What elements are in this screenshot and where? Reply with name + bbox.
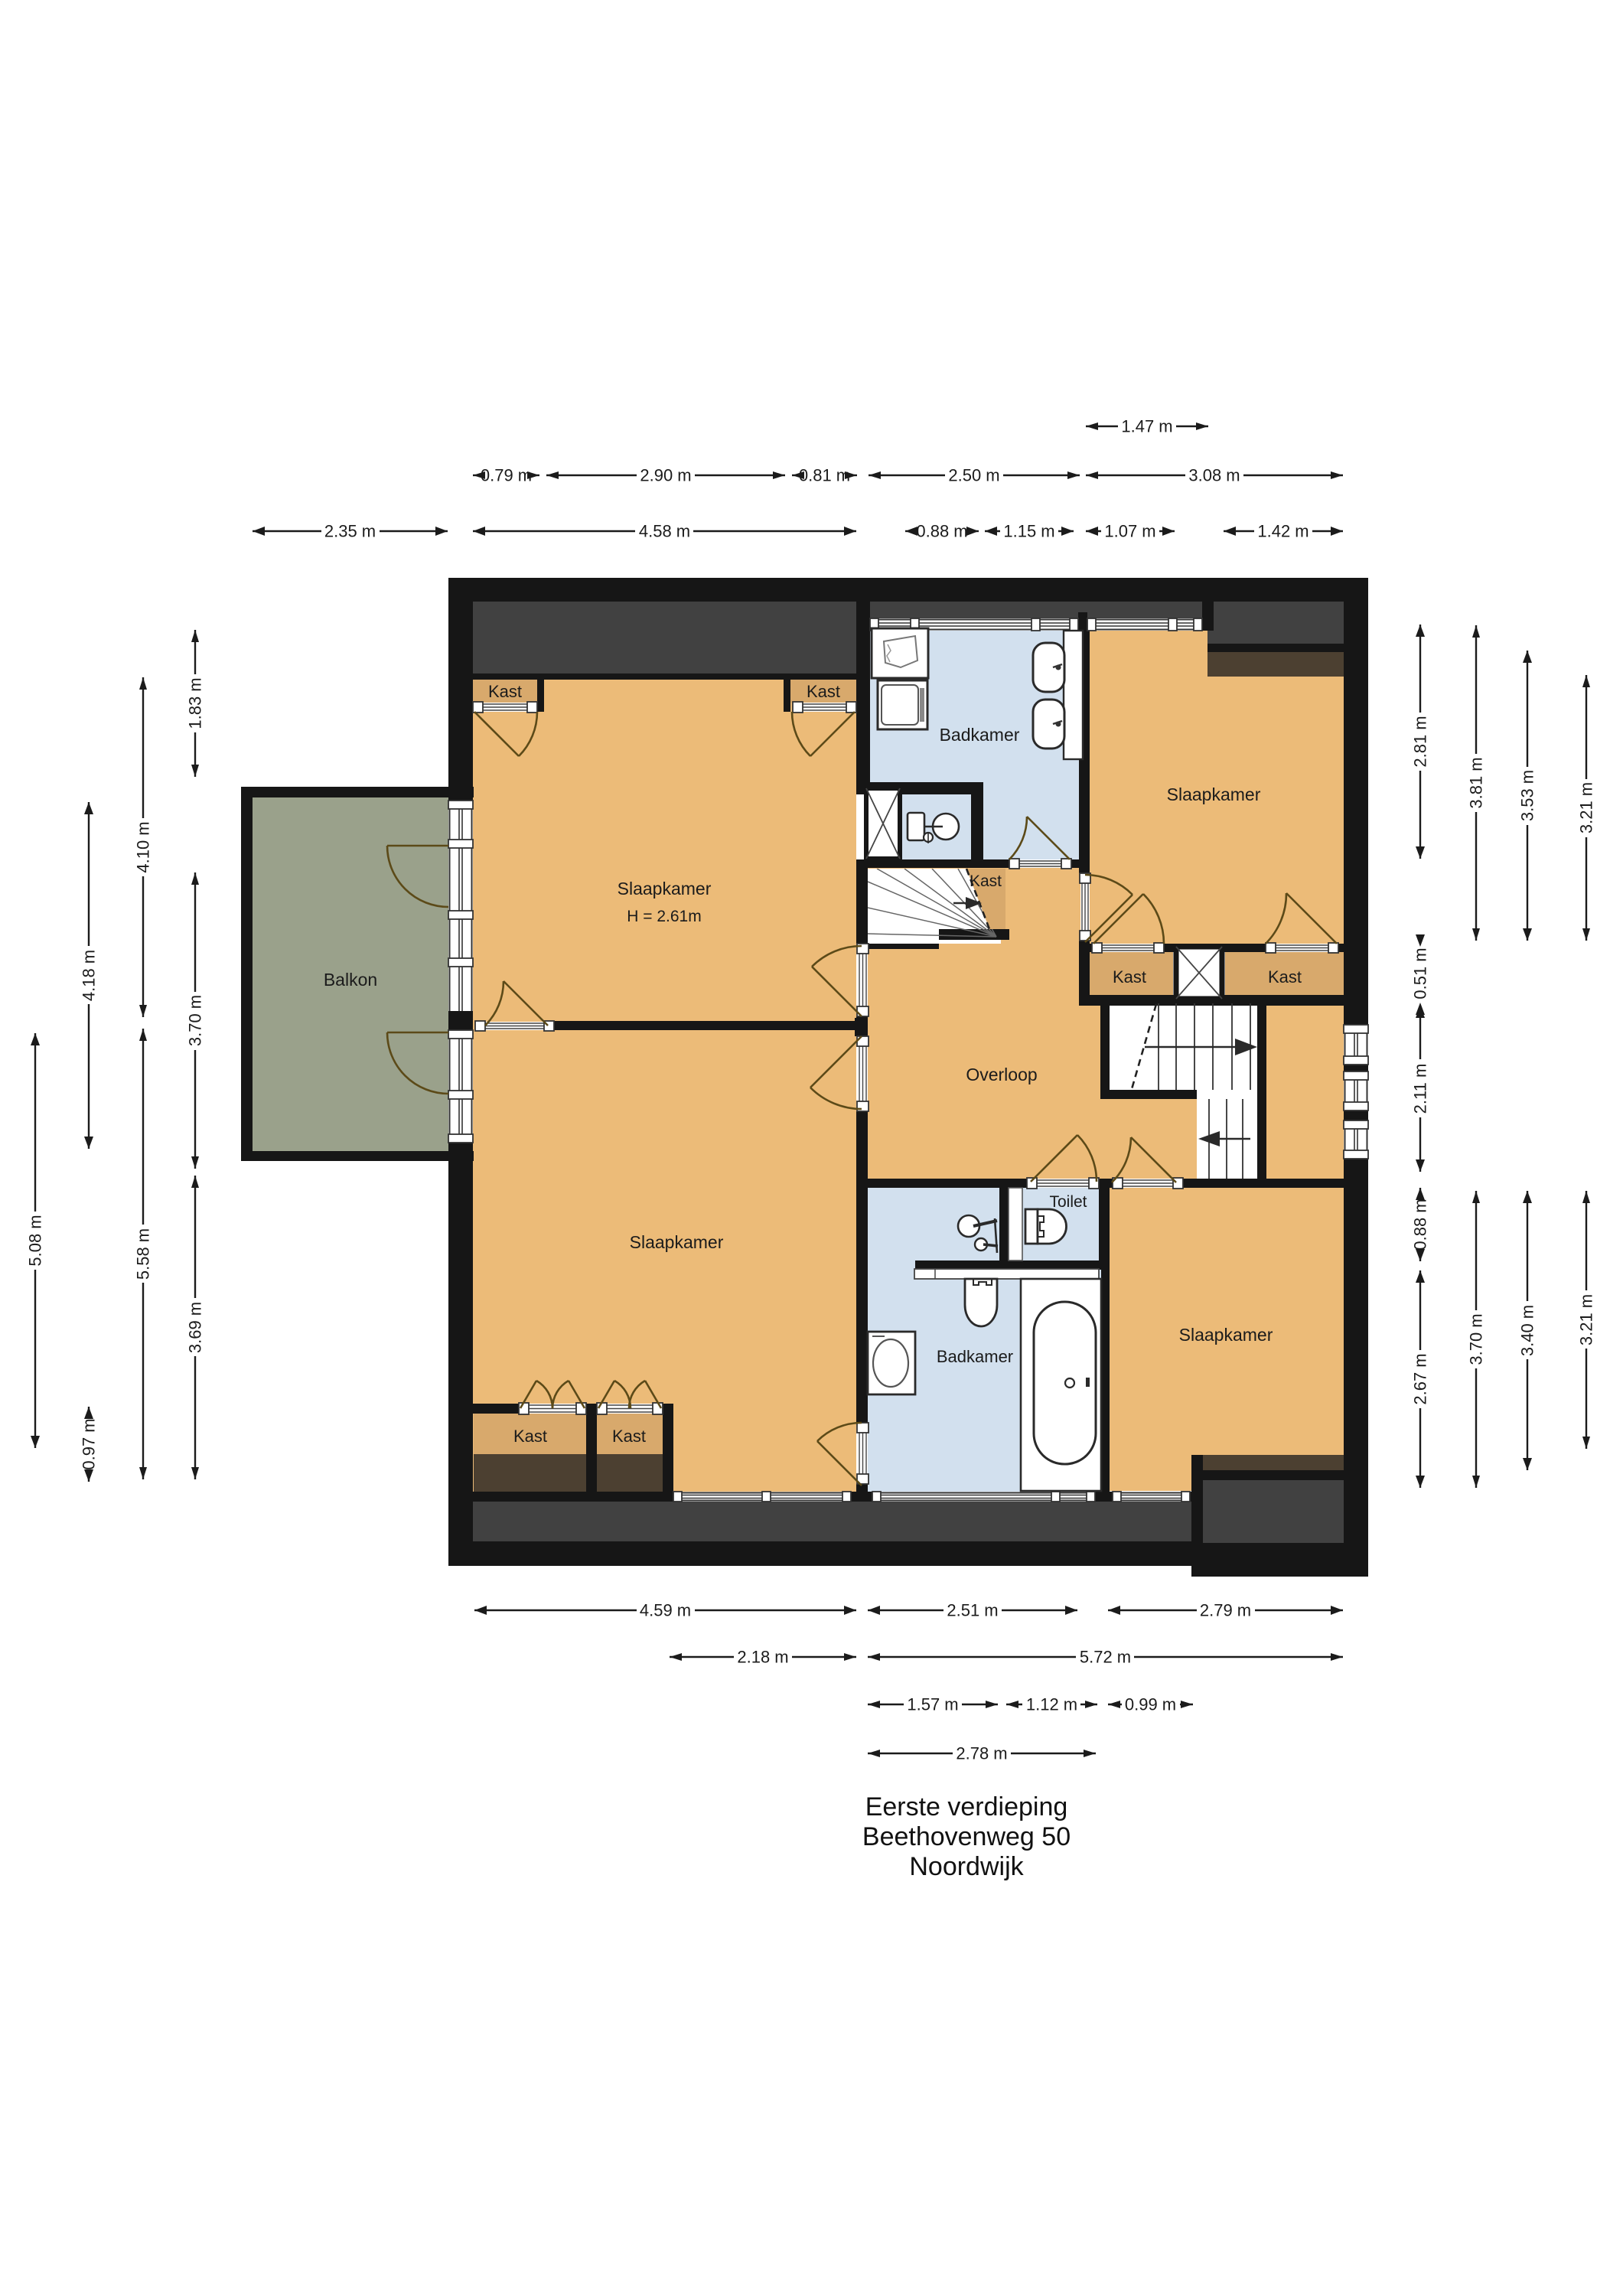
- svg-text:Kast: Kast: [488, 682, 522, 701]
- svg-text:4.10 m: 4.10 m: [134, 821, 153, 872]
- svg-text:Badkamer: Badkamer: [940, 725, 1020, 745]
- svg-text:1.83 m: 1.83 m: [186, 677, 205, 729]
- svg-text:1.42 m: 1.42 m: [1257, 522, 1309, 541]
- svg-text:0.99 m: 0.99 m: [1125, 1695, 1176, 1714]
- svg-text:2.79 m: 2.79 m: [1200, 1601, 1251, 1620]
- svg-text:Eerste verdieping: Eerste verdieping: [865, 1792, 1068, 1821]
- svg-text:2.35 m: 2.35 m: [324, 522, 376, 541]
- svg-text:H = 2.61m: H = 2.61m: [627, 908, 701, 925]
- svg-text:Beethovenweg 50: Beethovenweg 50: [862, 1822, 1071, 1851]
- svg-text:Slaapkamer: Slaapkamer: [1167, 784, 1261, 804]
- svg-text:Badkamer: Badkamer: [937, 1347, 1013, 1366]
- svg-text:3.08 m: 3.08 m: [1188, 466, 1240, 485]
- svg-text:Noordwijk: Noordwijk: [909, 1852, 1024, 1881]
- svg-text:4.59 m: 4.59 m: [640, 1601, 691, 1620]
- svg-text:Slaapkamer: Slaapkamer: [618, 879, 712, 899]
- svg-text:4.58 m: 4.58 m: [639, 522, 690, 541]
- svg-text:1.57 m: 1.57 m: [907, 1695, 958, 1714]
- svg-text:2.50 m: 2.50 m: [948, 466, 999, 485]
- svg-text:3.53 m: 3.53 m: [1518, 770, 1537, 821]
- svg-text:2.67 m: 2.67 m: [1411, 1353, 1430, 1404]
- svg-text:2.18 m: 2.18 m: [737, 1648, 788, 1667]
- svg-text:3.21 m: 3.21 m: [1577, 1294, 1596, 1345]
- svg-text:1.47 m: 1.47 m: [1121, 417, 1172, 436]
- svg-text:Kast: Kast: [513, 1427, 547, 1446]
- svg-text:1.07 m: 1.07 m: [1104, 522, 1155, 541]
- svg-text:3.70 m: 3.70 m: [186, 995, 205, 1046]
- svg-text:0.88 m: 0.88 m: [1411, 1199, 1430, 1250]
- svg-text:1.15 m: 1.15 m: [1003, 522, 1054, 541]
- svg-text:Overloop: Overloop: [966, 1065, 1037, 1084]
- svg-text:Kast: Kast: [1268, 967, 1302, 987]
- svg-text:0.88 m: 0.88 m: [916, 522, 967, 541]
- svg-text:3.21 m: 3.21 m: [1577, 782, 1596, 833]
- svg-text:Kast: Kast: [612, 1427, 646, 1446]
- svg-text:Kast: Kast: [807, 682, 840, 701]
- svg-text:3.69 m: 3.69 m: [186, 1302, 205, 1353]
- svg-text:Slaapkamer: Slaapkamer: [630, 1232, 724, 1252]
- svg-text:5.72 m: 5.72 m: [1080, 1648, 1131, 1667]
- svg-text:Toilet: Toilet: [1049, 1193, 1087, 1211]
- svg-text:Kast: Kast: [1113, 967, 1146, 987]
- svg-text:3.40 m: 3.40 m: [1518, 1305, 1537, 1356]
- svg-text:1.12 m: 1.12 m: [1026, 1695, 1077, 1714]
- svg-text:5.58 m: 5.58 m: [134, 1228, 153, 1280]
- svg-text:Balkon: Balkon: [324, 970, 377, 990]
- svg-text:0.79 m: 0.79 m: [481, 466, 532, 485]
- svg-text:2.11 m: 2.11 m: [1411, 1064, 1430, 1114]
- svg-text:3.70 m: 3.70 m: [1467, 1313, 1486, 1365]
- svg-text:2.81 m: 2.81 m: [1411, 716, 1430, 767]
- svg-text:5.08 m: 5.08 m: [26, 1215, 45, 1266]
- svg-text:0.81 m: 0.81 m: [799, 466, 850, 485]
- svg-text:Kast: Kast: [970, 872, 1002, 890]
- svg-text:2.51 m: 2.51 m: [947, 1601, 998, 1620]
- svg-text:4.18 m: 4.18 m: [80, 950, 99, 1001]
- svg-text:3.81 m: 3.81 m: [1467, 757, 1486, 808]
- svg-text:2.90 m: 2.90 m: [640, 466, 691, 485]
- svg-text:0.51 m: 0.51 m: [1411, 947, 1430, 999]
- svg-text:2.78 m: 2.78 m: [956, 1744, 1007, 1763]
- svg-text:Slaapkamer: Slaapkamer: [1179, 1325, 1273, 1345]
- svg-text:0.97 m: 0.97 m: [80, 1418, 99, 1469]
